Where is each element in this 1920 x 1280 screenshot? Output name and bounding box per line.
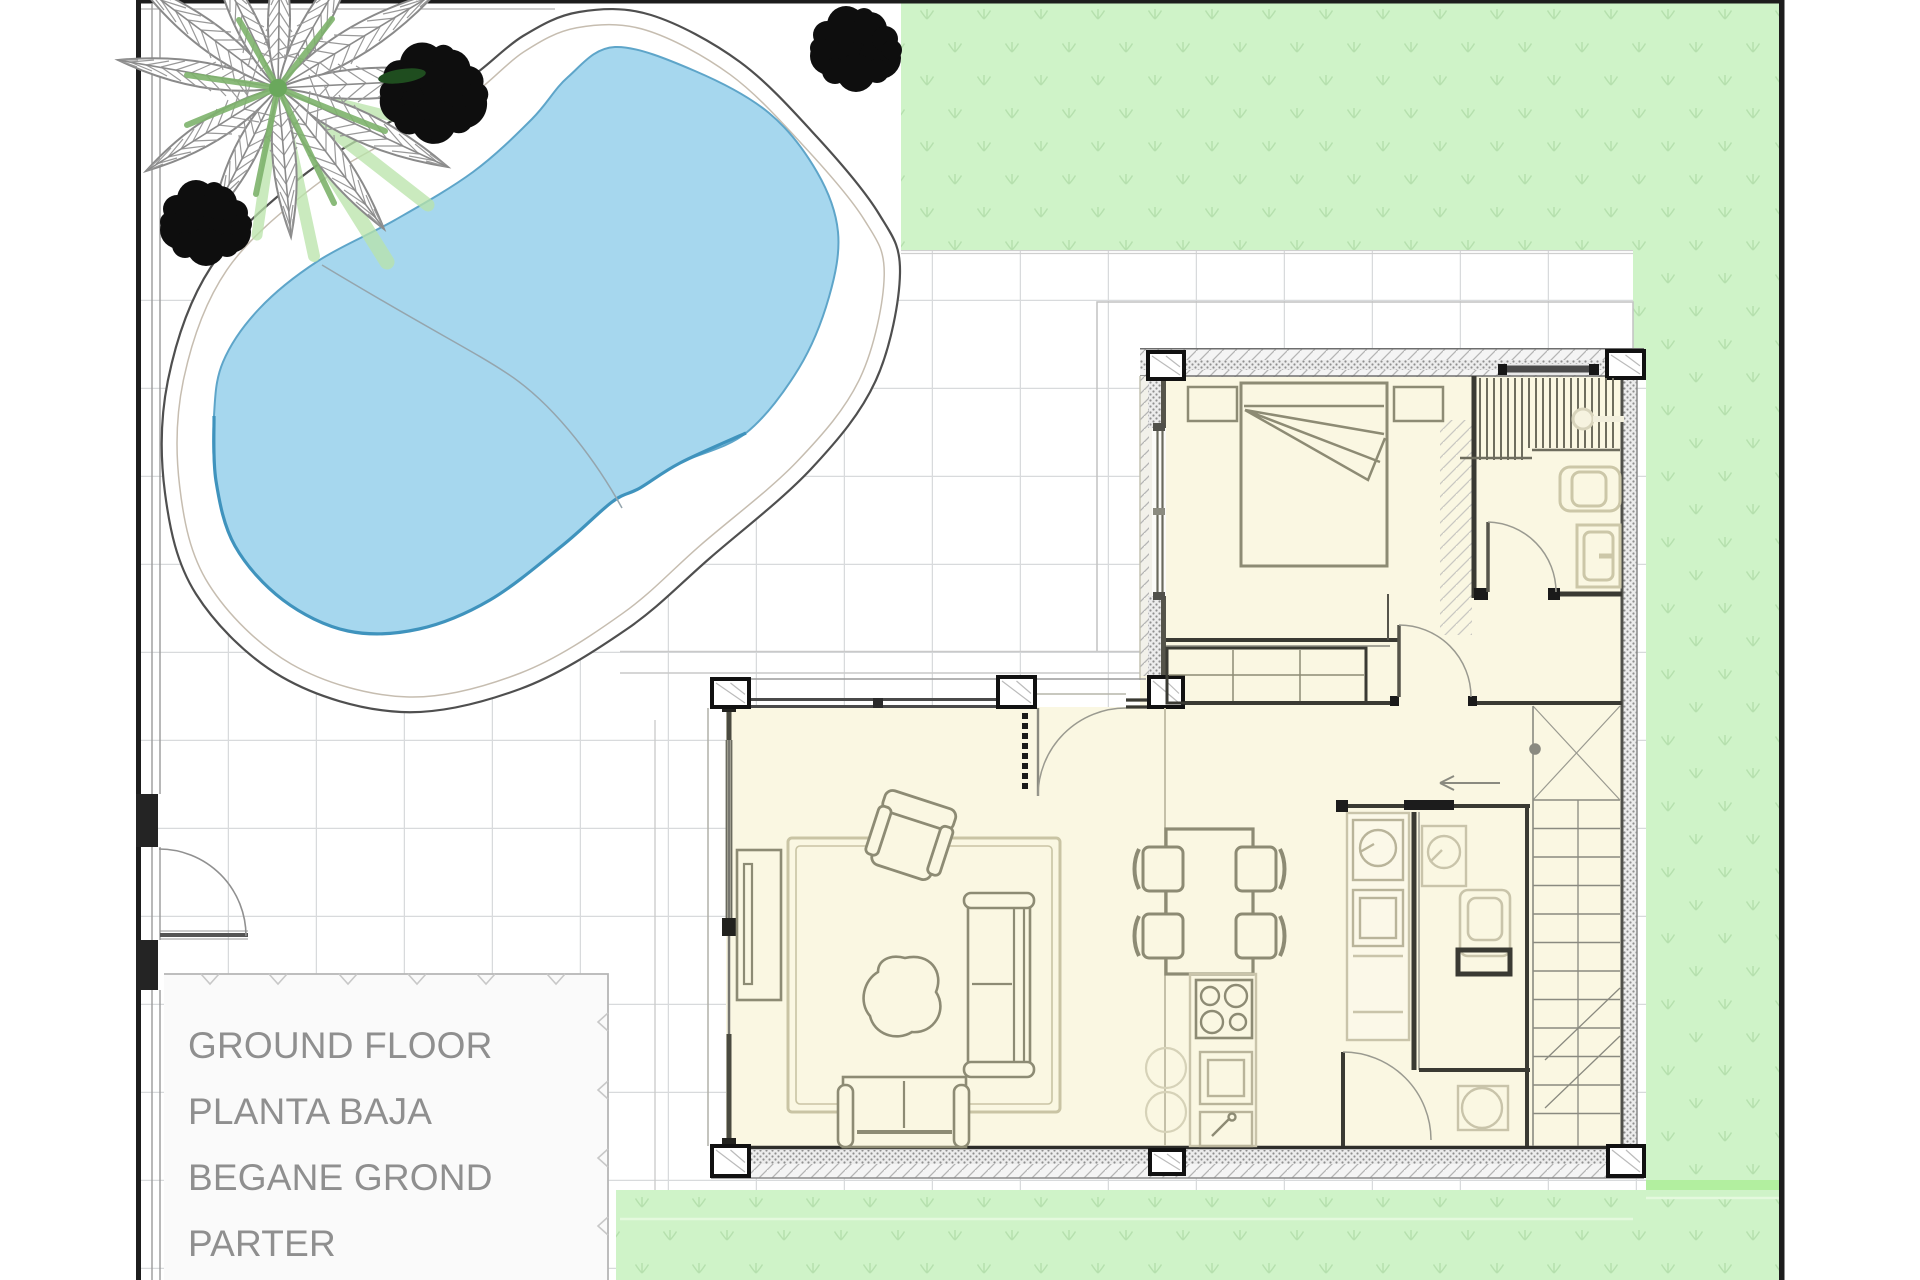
svg-text:GROUND FLOOR: GROUND FLOOR xyxy=(188,1025,493,1066)
svg-text:PLANTA BAJA: PLANTA BAJA xyxy=(188,1091,432,1132)
svg-text:BEGANE GROND: BEGANE GROND xyxy=(188,1157,493,1198)
svg-text:PARTER: PARTER xyxy=(188,1223,336,1264)
